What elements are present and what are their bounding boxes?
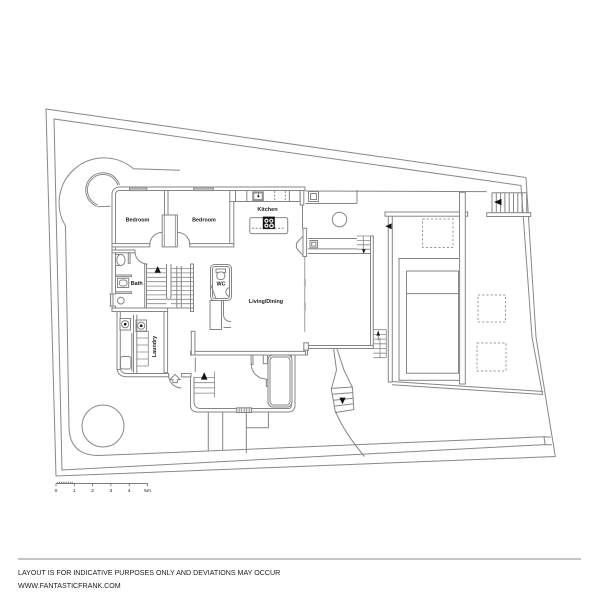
svg-text:3: 3	[110, 488, 113, 494]
svg-text:5m: 5m	[144, 488, 151, 494]
svg-text:WC: WC	[217, 282, 226, 288]
svg-text:Kitchen: Kitchen	[257, 207, 278, 213]
svg-text:0: 0	[55, 488, 58, 494]
svg-text:Laundry: Laundry	[152, 336, 158, 357]
svg-text:4: 4	[128, 488, 131, 494]
svg-text:LAYOUT IS FOR INDICATIVE PURPO: LAYOUT IS FOR INDICATIVE PURPOSES ONLY A…	[18, 569, 280, 577]
svg-text:Bedroom: Bedroom	[192, 218, 216, 224]
svg-text:Bedroom: Bedroom	[126, 218, 150, 224]
svg-text:2: 2	[91, 488, 94, 494]
svg-text:Bath: Bath	[131, 281, 143, 287]
svg-text:1: 1	[73, 488, 76, 494]
svg-text:WWW.FANTASTICFRANK.COM: WWW.FANTASTICFRANK.COM	[18, 582, 121, 590]
svg-text:Living/Dining: Living/Dining	[249, 299, 283, 305]
